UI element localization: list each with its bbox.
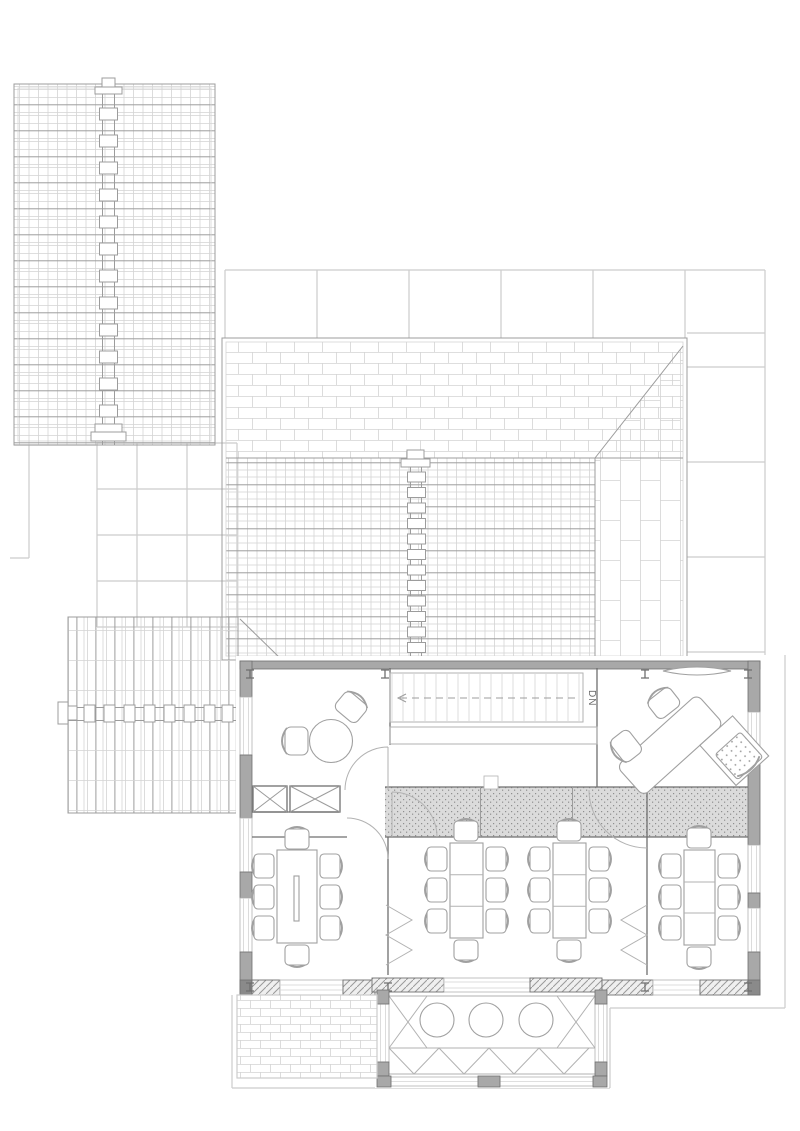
chair-icon [528,909,550,933]
chair-icon [687,826,711,848]
chair-icon [252,854,274,878]
cafe-table [469,1003,503,1037]
chair-icon [589,878,611,902]
roof-main [222,338,687,660]
table [684,850,715,945]
chair-icon [425,909,447,933]
chair-icon [320,854,342,878]
plan-svg: DN [0,0,800,1131]
chair-icon [252,916,274,940]
chair-icon [486,909,508,933]
chair-icon [659,916,681,940]
roof-northwest [14,78,215,445]
chair-icon [425,878,447,902]
chair-icon [528,847,550,871]
chair-icon [454,940,478,962]
cafe-table [519,1003,553,1037]
cable-slot [294,876,299,921]
corridor-wall-marker [484,776,498,789]
chair-icon [425,847,447,871]
chair-icon [320,885,342,909]
chair-icon [718,885,740,909]
chair-icon [486,878,508,902]
chair-icon [687,947,711,969]
chair-icon [320,916,342,940]
chair-icon [252,885,274,909]
chair-icon [454,819,478,841]
stair-direction-label: DN [586,690,597,706]
floor-plan-drawing: DN [0,0,800,1131]
chair-icon [557,940,581,962]
roof-ridge-cap-icon [58,702,238,724]
chair-icon [528,878,550,902]
cafe-table [420,1003,454,1037]
chair-icon [659,885,681,909]
armchair-icon [282,727,308,755]
chair-icon [718,916,740,940]
chair-icon [718,854,740,878]
roof-west-annex [58,617,238,813]
chair-icon [659,854,681,878]
chair-icon [589,847,611,871]
brick-patio [237,995,377,1078]
chair-icon [486,847,508,871]
chair-icon [285,827,309,849]
round-table [310,720,353,763]
chair-icon [285,945,309,967]
table [450,843,483,938]
chair-icon [589,909,611,933]
table [553,843,586,938]
chair-icon [557,819,581,841]
